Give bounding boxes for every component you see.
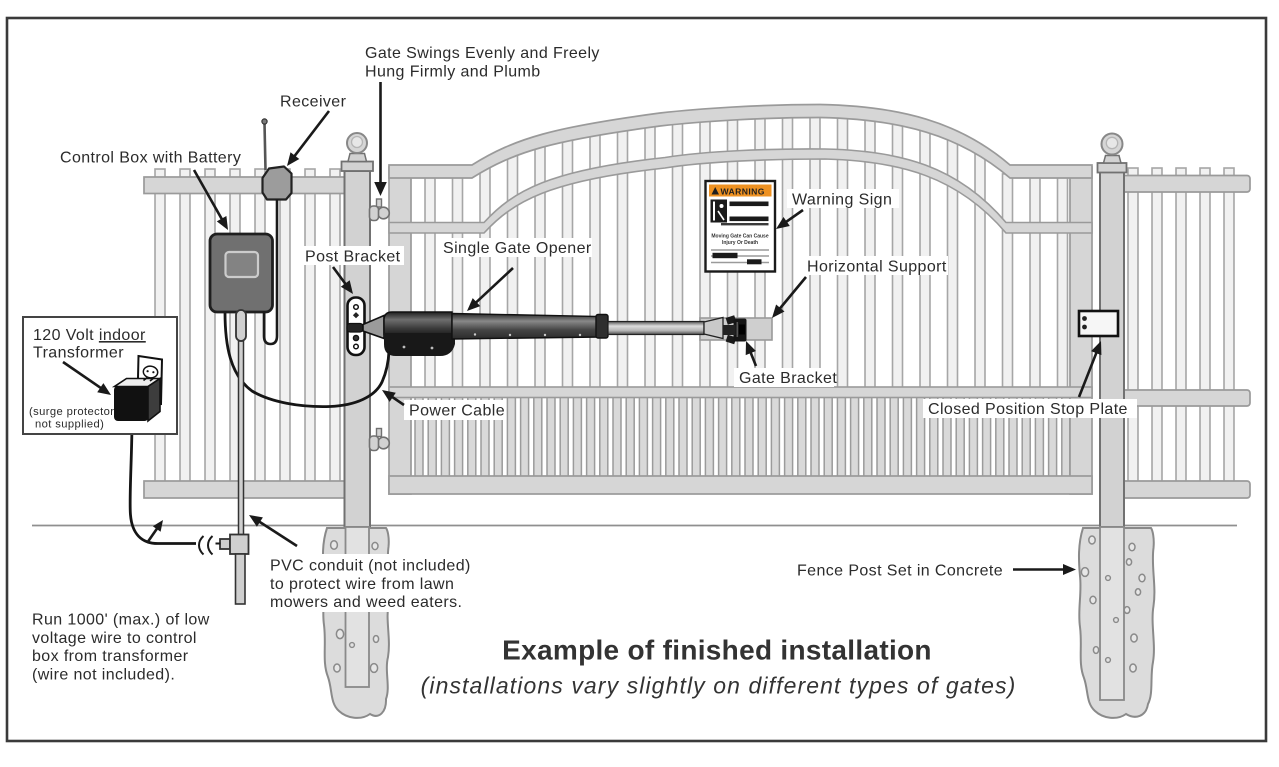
svg-text:Receiver: Receiver [280, 94, 347, 111]
svg-text:Transformer: Transformer [33, 345, 124, 362]
svg-text:voltage wire to control: voltage wire to control [32, 630, 197, 647]
svg-text:(installations vary slightly o: (installations vary slightly on differen… [421, 673, 1017, 699]
svg-text:Control Box with Battery: Control Box with Battery [60, 150, 241, 167]
svg-text:Post Bracket: Post Bracket [305, 249, 401, 266]
svg-text:(surge protector: (surge protector [29, 406, 114, 418]
svg-text:Gate Bracket: Gate Bracket [739, 370, 837, 387]
svg-text:Example of finished installati: Example of finished installation [502, 635, 932, 666]
svg-text:Moving Gate Can Cause: Moving Gate Can Cause [711, 234, 768, 240]
svg-text:120 Volt indoor: 120 Volt indoor [33, 327, 146, 344]
svg-text:Hung Firmly and Plumb: Hung Firmly and Plumb [365, 63, 541, 80]
svg-text:not supplied): not supplied) [35, 419, 104, 431]
svg-text:(wire not included).: (wire not included). [32, 666, 175, 683]
svg-text:to protect wire from lawn: to protect wire from lawn [270, 576, 454, 593]
svg-text:Horizontal Support: Horizontal Support [807, 259, 947, 276]
svg-text:Gate Swings Evenly and Freely: Gate Swings Evenly and Freely [365, 45, 600, 62]
svg-text:Single Gate Opener: Single Gate Opener [443, 240, 592, 257]
svg-text:PVC conduit (not included): PVC conduit (not included) [270, 558, 471, 575]
svg-text:Power Cable: Power Cable [409, 403, 505, 420]
svg-text:mowers and weed eaters.: mowers and weed eaters. [270, 594, 462, 611]
svg-text:Injury Or Death: Injury Or Death [722, 240, 758, 246]
svg-text:Warning Sign: Warning Sign [792, 192, 892, 209]
svg-text:Closed Position Stop Plate: Closed Position Stop Plate [928, 401, 1128, 418]
svg-text:Fence Post Set in Concrete: Fence Post Set in Concrete [797, 563, 1003, 580]
svg-text:box from transformer: box from transformer [32, 648, 189, 665]
svg-text:Run 1000' (max.) of low: Run 1000' (max.) of low [32, 612, 210, 629]
svg-text:WARNING: WARNING [721, 186, 765, 196]
